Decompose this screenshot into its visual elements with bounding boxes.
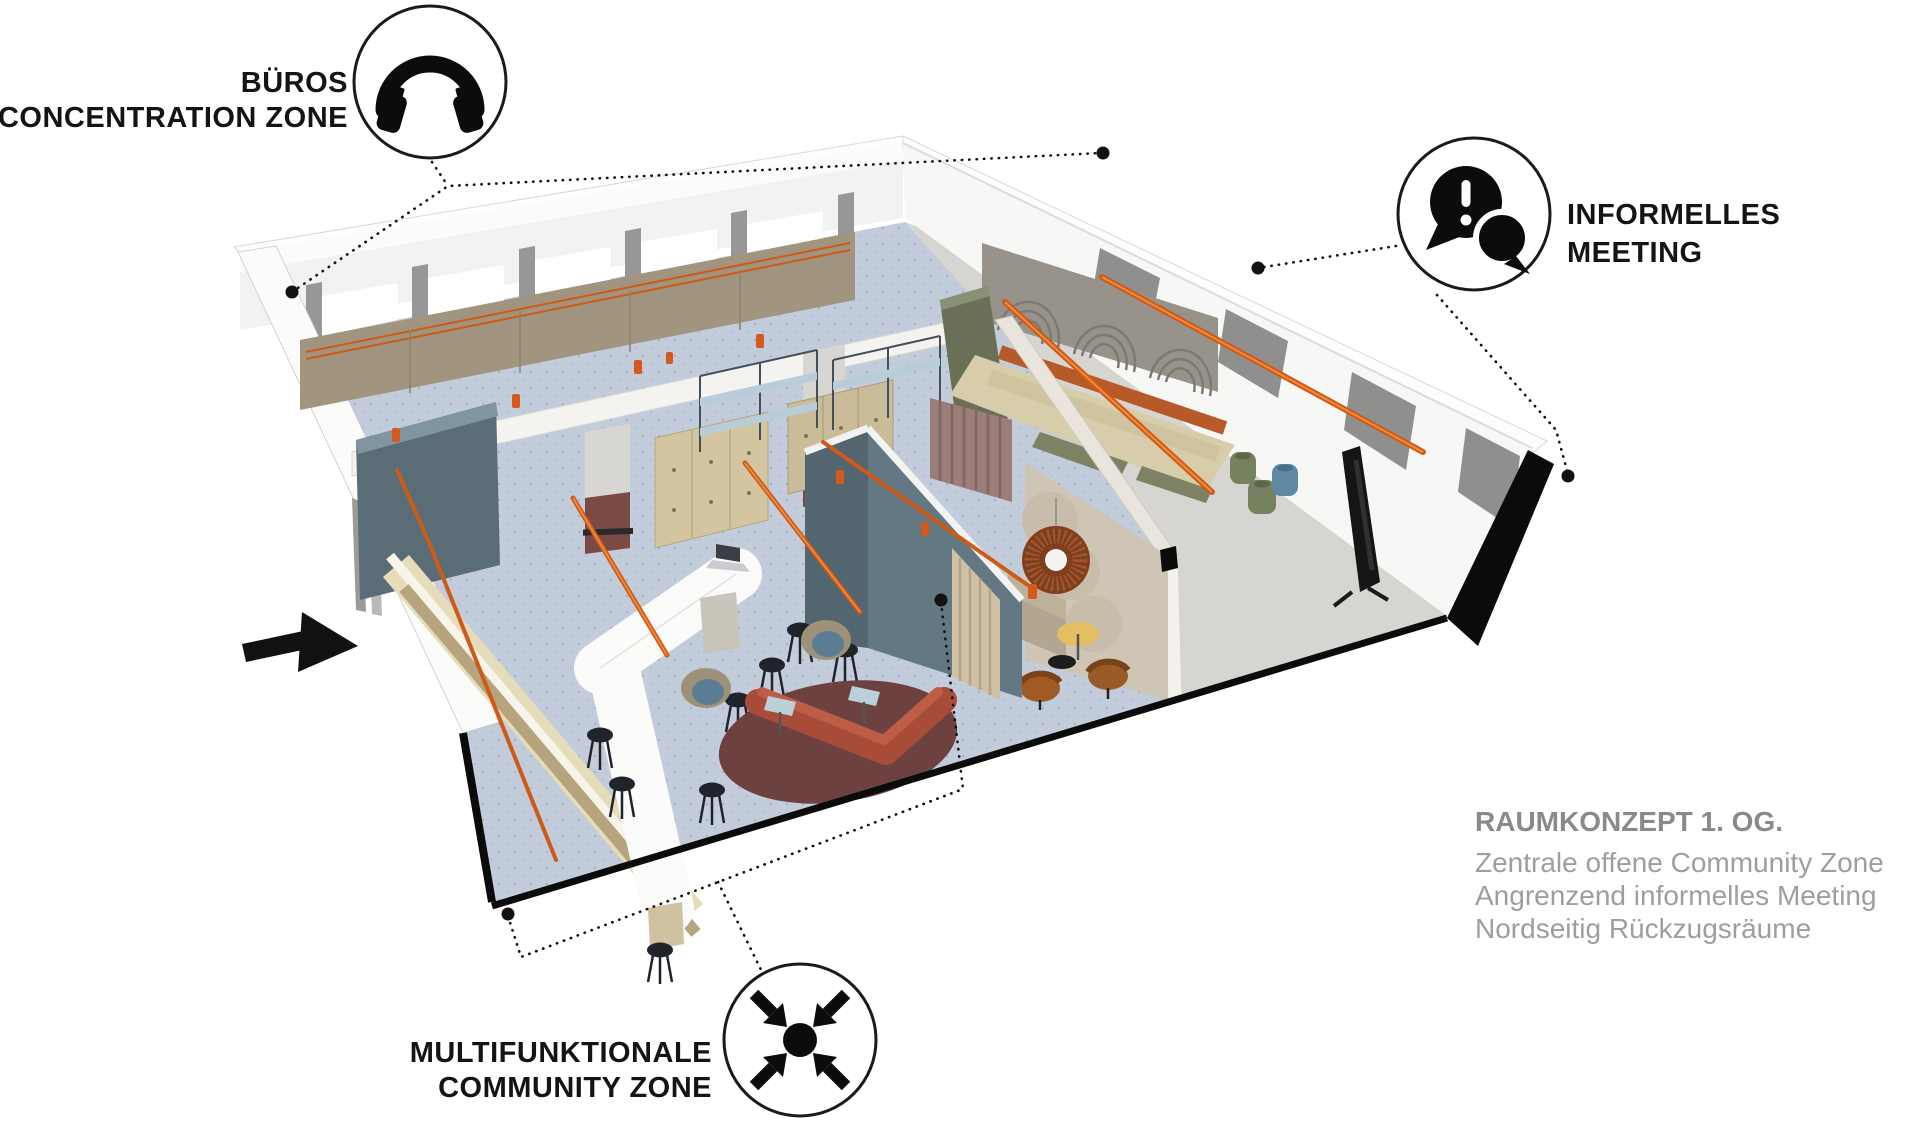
callout-line-meeting-a [1258, 246, 1396, 268]
caption-line-2: Angrenzend informelles Meeting [1475, 880, 1877, 911]
callout-line-offices-stub [432, 162, 448, 186]
concept-diagram-page: BÜROS CONCENTRATION ZONE INFORMELLES MEE… [0, 0, 1920, 1128]
caption-title: RAUMKONZEPT 1. OG. [1475, 806, 1783, 837]
callout-meeting [1398, 138, 1550, 290]
armchair [681, 668, 731, 708]
callout-offices-label: BÜROS CONCENTRATION ZONE [0, 66, 348, 134]
pod-wall-left [805, 428, 868, 648]
callout-offices [354, 6, 506, 158]
wall-pier [412, 264, 428, 322]
callout-community [724, 964, 876, 1116]
column [583, 424, 633, 554]
caption-line-3: Nordseitig Rückzugsräume [1475, 913, 1811, 944]
stool-black [1048, 655, 1076, 669]
bar-stool [647, 943, 673, 985]
community-label-line2: COMMUNITY ZONE [438, 1072, 712, 1104]
callout-line-community-branch [718, 882, 766, 980]
meeting-label-line1: INFORMELLES [1567, 199, 1780, 231]
floorplan-illustration: BÜROS CONCENTRATION ZONE INFORMELLES MEE… [0, 0, 1920, 1128]
offices-label-line2: CONCENTRATION ZONE [0, 102, 348, 134]
caption-block: RAUMKONZEPT 1. OG. Zentrale offene Commu… [1475, 806, 1884, 944]
callout-meeting-label: INFORMELLES MEETING [1567, 199, 1780, 269]
armchair [801, 620, 851, 660]
callout-community-label: MULTIFUNKTIONALE COMMUNITY ZONE [410, 1037, 712, 1104]
offices-badge-circle [354, 6, 506, 158]
community-label-line1: MULTIFUNKTIONALE [410, 1037, 712, 1069]
building [234, 136, 1554, 984]
caption-line-1: Zentrale offene Community Zone [1475, 847, 1884, 878]
meeting-label-line2: MEETING [1567, 237, 1703, 269]
offices-label-line1: BÜROS [241, 66, 348, 99]
entrance-arrow [242, 612, 358, 672]
